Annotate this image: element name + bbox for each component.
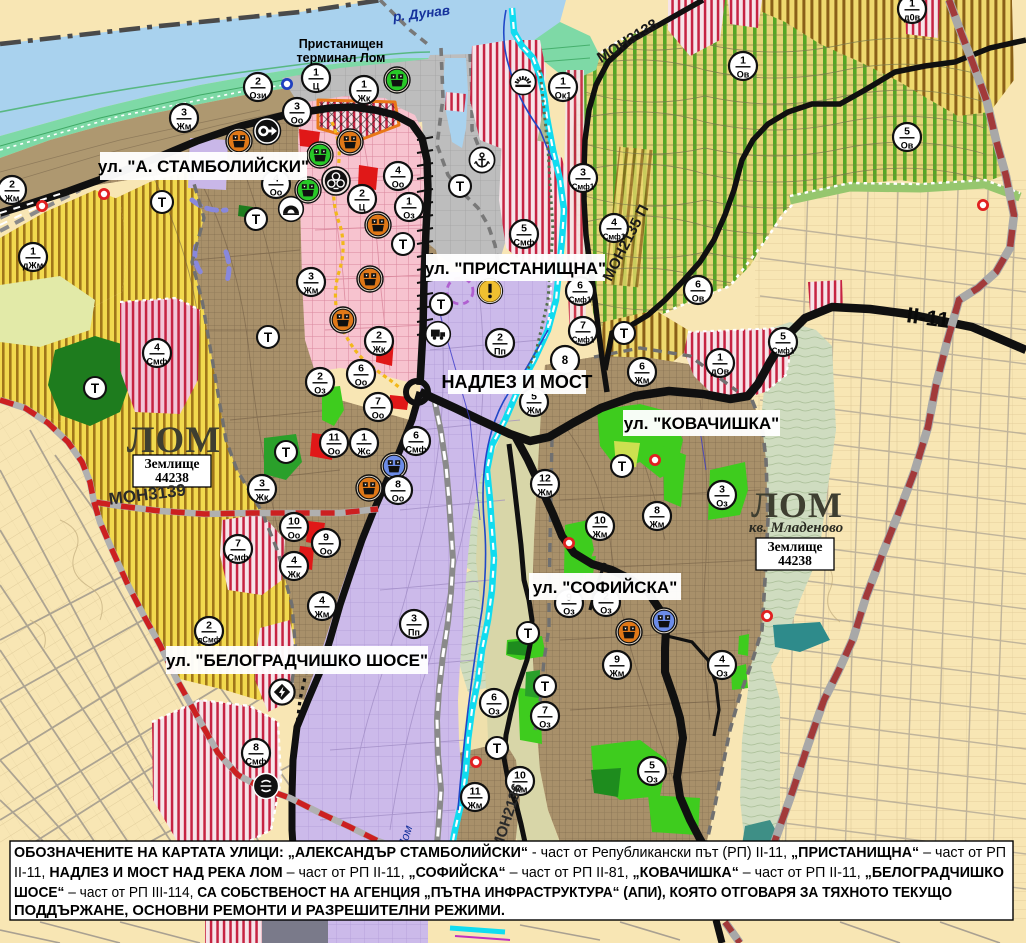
svg-text:дОв: дОв xyxy=(711,367,730,377)
svg-text:1: 1 xyxy=(560,76,566,88)
svg-text:Землище: Землище xyxy=(767,539,822,554)
svg-text:кв. Младеново: кв. Младеново xyxy=(749,520,843,536)
svg-text:ул. "А. СТАМБОЛИЙСКИ": ул. "А. СТАМБОЛИЙСКИ" xyxy=(98,157,309,176)
svg-text:1: 1 xyxy=(909,0,915,10)
svg-text:1: 1 xyxy=(313,67,319,79)
svg-text:2: 2 xyxy=(359,188,365,200)
svg-text:Жм: Жм xyxy=(537,488,553,498)
svg-text:3: 3 xyxy=(259,478,265,490)
svg-text:10: 10 xyxy=(514,770,526,782)
svg-text:11: 11 xyxy=(469,786,480,798)
svg-text:ПОДДЪРЖАНЕ, ОСНОВНИ РЕМОНТИ И: ПОДДЪРЖАНЕ, ОСНОВНИ РЕМОНТИ И РАЗРЕШИТЕЛ… xyxy=(14,903,505,919)
svg-text:10: 10 xyxy=(594,515,606,527)
svg-text:7: 7 xyxy=(375,396,381,408)
svg-text:8: 8 xyxy=(253,742,259,754)
svg-text:Т: Т xyxy=(399,237,408,252)
svg-text:Оз: Оз xyxy=(716,669,728,679)
svg-text:ЛОМ: ЛОМ xyxy=(751,485,843,525)
svg-text:ул. "КОВАЧИШКА": ул. "КОВАЧИШКА" xyxy=(624,414,780,433)
svg-text:8: 8 xyxy=(395,479,401,491)
svg-text:Ц: Ц xyxy=(313,82,320,92)
svg-text:Жк: Жк xyxy=(287,570,301,580)
svg-text:8: 8 xyxy=(562,355,569,367)
svg-text:Смф1: Смф1 xyxy=(572,183,595,192)
svg-text:4: 4 xyxy=(154,342,160,354)
svg-text:4: 4 xyxy=(395,165,401,177)
svg-text:6: 6 xyxy=(358,363,364,375)
svg-text:Жм: Жм xyxy=(649,520,665,530)
svg-text:Т: Т xyxy=(618,459,627,474)
svg-text:Оо: Оо xyxy=(291,116,304,126)
svg-text:Оо: Оо xyxy=(392,180,405,190)
svg-text:7: 7 xyxy=(542,705,548,717)
svg-text:1: 1 xyxy=(740,55,746,67)
svg-text:3: 3 xyxy=(580,167,586,179)
svg-text:2: 2 xyxy=(206,620,212,632)
svg-text:ул. "ПРИСТАНИЩНА": ул. "ПРИСТАНИЩНА" xyxy=(425,259,606,278)
svg-text:Т: Т xyxy=(620,326,629,341)
svg-text:Жм: Жм xyxy=(592,530,608,540)
svg-text:11: 11 xyxy=(328,432,339,444)
svg-text:Смф: Смф xyxy=(147,357,168,367)
svg-text:дЖм: дЖм xyxy=(23,261,44,271)
svg-text:3: 3 xyxy=(294,101,300,113)
svg-text:2: 2 xyxy=(317,371,323,383)
svg-text:5: 5 xyxy=(521,223,527,235)
svg-text:Жм: Жм xyxy=(4,194,20,204)
svg-text:1: 1 xyxy=(30,246,36,258)
svg-text:3: 3 xyxy=(411,613,417,625)
svg-text:1: 1 xyxy=(717,352,723,364)
svg-text:4: 4 xyxy=(719,654,725,666)
svg-text:4: 4 xyxy=(319,595,325,607)
svg-text:Т: Т xyxy=(493,741,502,756)
svg-text:9: 9 xyxy=(323,532,329,544)
svg-text:терминал Лом: терминал Лом xyxy=(297,51,386,65)
svg-text:Оз: Оз xyxy=(539,720,551,730)
svg-text:Т: Т xyxy=(282,445,291,460)
svg-text:ОБОЗНАЧЕНИТЕ НА КАРТАТА УЛИЦИ:: ОБОЗНАЧЕНИТЕ НА КАРТАТА УЛИЦИ: „АЛЕКСАНД… xyxy=(14,843,1006,861)
svg-text:1: 1 xyxy=(361,79,367,91)
svg-text:Жм: Жм xyxy=(526,406,542,416)
svg-text:Ов: Ов xyxy=(737,70,750,80)
svg-text:Ов: Ов xyxy=(901,141,914,151)
svg-text:Смф: Смф xyxy=(514,238,535,248)
svg-text:Ози: Ози xyxy=(249,91,266,101)
svg-text:5: 5 xyxy=(649,760,655,772)
svg-text:Оз: Оз xyxy=(716,499,728,509)
svg-text:Жм: Жм xyxy=(467,801,483,811)
svg-text:2: 2 xyxy=(497,332,503,344)
svg-text:Пристанищен: Пристанищен xyxy=(299,37,384,51)
svg-text:44238: 44238 xyxy=(778,553,812,568)
svg-text:6: 6 xyxy=(695,279,701,291)
svg-text:Смф: Смф xyxy=(406,445,427,455)
svg-text:Оо: Оо xyxy=(288,531,301,541)
svg-text:6: 6 xyxy=(413,430,419,442)
svg-text:Оо: Оо xyxy=(392,494,405,504)
svg-text:2: 2 xyxy=(376,330,382,342)
svg-text:Оз: Оз xyxy=(600,606,612,616)
svg-text:8: 8 xyxy=(654,505,660,517)
svg-text:д0в: д0в xyxy=(904,13,921,23)
svg-text:4: 4 xyxy=(611,217,617,229)
svg-text:Землище: Землище xyxy=(144,456,199,471)
svg-text:Ок1: Ок1 xyxy=(555,91,572,101)
svg-text:Жс: Жс xyxy=(356,447,370,457)
svg-text:Оо: Оо xyxy=(320,547,333,557)
svg-text:Оз: Оз xyxy=(563,607,575,617)
svg-text:Т: Т xyxy=(158,195,167,210)
svg-text:1: 1 xyxy=(406,196,412,208)
svg-text:Оз: Оз xyxy=(403,211,415,221)
svg-text:10: 10 xyxy=(288,516,300,528)
svg-text:5: 5 xyxy=(780,331,786,343)
svg-text:ул. "СОФИЙСКА": ул. "СОФИЙСКА" xyxy=(533,578,678,597)
svg-text:7: 7 xyxy=(580,320,586,332)
svg-text:Ов: Ов xyxy=(692,294,705,304)
svg-text:Оо: Оо xyxy=(328,447,341,457)
svg-text:5: 5 xyxy=(904,126,910,138)
svg-text:Т: Т xyxy=(91,381,100,396)
svg-text:Оз: Оз xyxy=(488,707,500,717)
svg-text:Жм: Жм xyxy=(634,376,650,386)
svg-text:Жм: Жм xyxy=(176,122,192,132)
svg-text:3: 3 xyxy=(181,107,187,119)
svg-text:Т: Т xyxy=(541,679,550,694)
svg-text:Смф1: Смф1 xyxy=(569,296,592,305)
svg-text:Жм: Жм xyxy=(314,610,330,620)
svg-text:Ц: Ц xyxy=(359,203,366,213)
svg-text:Жм: Жм xyxy=(609,669,625,679)
svg-text:ШОСЕ“ – част от РП III-114, СА: ШОСЕ“ – част от РП III-114, СА СОБСТВЕНО… xyxy=(14,885,952,901)
svg-text:3: 3 xyxy=(719,484,725,496)
svg-text:Смф1: Смф1 xyxy=(772,347,795,356)
svg-text:Т: Т xyxy=(252,212,261,227)
svg-text:Оз: Оз xyxy=(314,386,326,396)
svg-text:Оо: Оо xyxy=(270,188,283,198)
svg-text:Т: Т xyxy=(524,626,533,641)
svg-text:9: 9 xyxy=(614,654,620,666)
svg-text:НАДЛЕЗ И МОСТ: НАДЛЕЗ И МОСТ xyxy=(442,372,593,392)
svg-text:Смф1: Смф1 xyxy=(572,336,595,345)
svg-text:дСмф: дСмф xyxy=(197,636,220,645)
svg-text:Оо: Оо xyxy=(355,378,368,388)
svg-text:II-11, НАДЛЕЗ И МОСТ НАД РЕКА: II-11, НАДЛЕЗ И МОСТ НАД РЕКА ЛОМ – част… xyxy=(14,863,1004,881)
svg-text:12: 12 xyxy=(539,473,551,485)
svg-text:2: 2 xyxy=(9,179,15,191)
svg-text:Смф: Смф xyxy=(228,553,249,563)
svg-text:6: 6 xyxy=(639,361,645,373)
svg-text:Жк: Жк xyxy=(357,94,371,104)
svg-text:Оз: Оз xyxy=(646,775,658,785)
svg-text:Пп: Пп xyxy=(408,628,420,638)
svg-text:6: 6 xyxy=(577,280,583,292)
svg-text:Смф: Смф xyxy=(246,757,267,767)
svg-text:Т: Т xyxy=(456,179,465,194)
svg-text:3: 3 xyxy=(308,271,314,283)
svg-text:Жк: Жк xyxy=(255,493,269,503)
svg-text:Т: Т xyxy=(264,330,273,345)
svg-text:6: 6 xyxy=(491,692,497,704)
svg-text:2: 2 xyxy=(255,76,261,88)
svg-text:1: 1 xyxy=(361,432,367,444)
svg-text:Т: Т xyxy=(437,297,446,312)
svg-text:ул. "БЕЛОГРАДЧИШКО ШОСЕ": ул. "БЕЛОГРАДЧИШКО ШОСЕ" xyxy=(166,651,428,670)
svg-text:Жк: Жк xyxy=(372,345,386,355)
svg-text:Оо: Оо xyxy=(372,411,385,421)
svg-text:Пп: Пп xyxy=(494,347,506,357)
svg-text:4: 4 xyxy=(291,555,297,567)
svg-text:Жм: Жм xyxy=(303,286,319,296)
svg-text:7: 7 xyxy=(235,538,241,550)
